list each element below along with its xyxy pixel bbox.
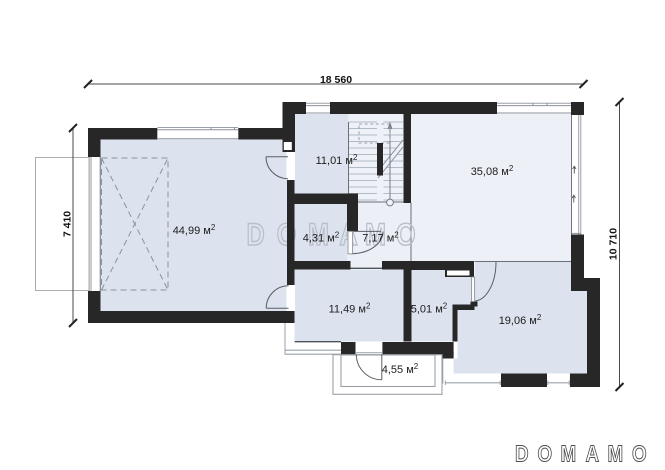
svg-text:11,01 м2: 11,01 м2: [316, 153, 358, 167]
svg-text:7,17 м2: 7,17 м2: [362, 231, 399, 245]
svg-text:D: D: [515, 441, 529, 468]
svg-text:4,55 м2: 4,55 м2: [382, 362, 419, 376]
svg-text:44,99 м2: 44,99 м2: [173, 223, 216, 237]
svg-text:18 560: 18 560: [320, 74, 352, 86]
svg-text:O: O: [396, 217, 416, 252]
svg-text:11,49 м2: 11,49 м2: [329, 302, 371, 316]
svg-text:M: M: [608, 441, 624, 468]
svg-text:O: O: [632, 441, 647, 468]
svg-text:D: D: [247, 217, 265, 252]
svg-text:10 710: 10 710: [608, 228, 620, 260]
svg-text:M: M: [561, 441, 577, 468]
svg-text:19,06 м2: 19,06 м2: [499, 313, 542, 327]
svg-text:5,01 м2: 5,01 м2: [411, 302, 448, 316]
svg-text:7 410: 7 410: [62, 211, 74, 237]
svg-text:O: O: [538, 441, 553, 468]
svg-text:A: A: [586, 441, 600, 468]
svg-text:35,08 м2: 35,08 м2: [471, 164, 514, 178]
svg-text:4,31 м2: 4,31 м2: [303, 231, 340, 245]
